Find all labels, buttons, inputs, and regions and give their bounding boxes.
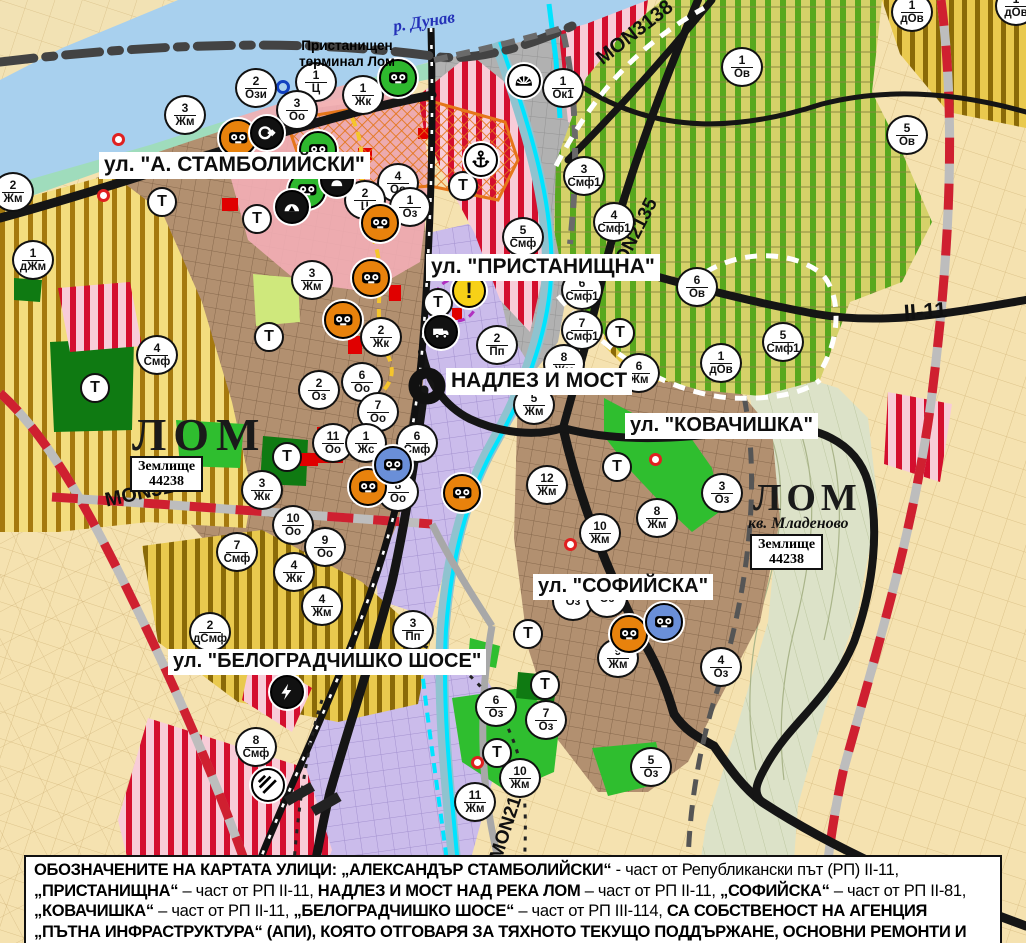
zone-marker-Смф1: 3Смф1 bbox=[563, 156, 605, 196]
zone-marker-дОв: 1дОв bbox=[891, 0, 933, 32]
road-number-label: II-11 bbox=[903, 297, 948, 326]
map-caption: ОБОЗНАЧЕНИТЕ НА КАРТАТА УЛИЦИ: „АЛЕКСАНД… bbox=[24, 855, 1002, 943]
zone-marker-Смф: 8Смф bbox=[235, 727, 277, 767]
zone-marker-Смф: 5Смф bbox=[502, 217, 544, 257]
culture-glyph bbox=[617, 622, 641, 646]
culture-icon bbox=[361, 204, 399, 242]
zone-marker-Ок1: 1Ок1 bbox=[542, 68, 584, 108]
caption-segment: „ПРИСТАНИЩНА“ bbox=[34, 882, 178, 900]
street-label: ул. "ПРИСТАНИЩНА" bbox=[426, 254, 660, 281]
zone-marker-Смф: 4Смф bbox=[136, 335, 178, 375]
caption-segment: – част от РП II-81, bbox=[830, 882, 967, 900]
caption-segment: – част от РП II-11, bbox=[178, 882, 318, 900]
culture-glyph bbox=[331, 308, 355, 332]
culture-glyph bbox=[356, 475, 380, 499]
zone-marker-Жм: 4Жм bbox=[301, 586, 343, 626]
zone-marker-Оз: 5Оз bbox=[630, 747, 672, 787]
road-number-label: MON3138 bbox=[592, 0, 678, 70]
zone-marker-Оз: 6Оз bbox=[475, 687, 517, 727]
zone-marker-Ов: 5Ов bbox=[886, 115, 928, 155]
zone-marker-Жк: 2Жк bbox=[360, 317, 402, 357]
land-register-box: Землище 44238 bbox=[750, 534, 823, 570]
sun-glyph bbox=[513, 70, 535, 92]
city-name-lom: ЛОМ bbox=[132, 408, 266, 461]
zemlishte-label: Землище bbox=[138, 459, 195, 474]
zone-marker-Ози: 2Ози bbox=[235, 68, 277, 108]
zone-marker-дСмф: 2дСмф bbox=[189, 612, 231, 652]
transformer-marker: Т bbox=[602, 452, 632, 482]
culture-glyph bbox=[652, 610, 676, 634]
culture-icon bbox=[610, 615, 648, 653]
zone-marker-Смф: 7Смф bbox=[216, 532, 258, 572]
urban-plan-map-lom: 2Ози1Ц3Оо1Жк3Жм2Жм1дЖм4Оо2Ц1Оз3Жм2Жк6Оо2… bbox=[0, 0, 1026, 943]
zemlishte-label: Землище bbox=[758, 537, 815, 552]
street-label: ул. "А. СТАМБОЛИЙСКИ" bbox=[99, 152, 370, 179]
city-name-lom-mladenovo: ЛОМ bbox=[753, 476, 862, 520]
zone-marker-Жк: 4Жк bbox=[273, 552, 315, 592]
culture-icon bbox=[443, 474, 481, 512]
sun-icon bbox=[507, 64, 541, 98]
anchor-icon bbox=[464, 143, 498, 177]
caption-segment: „КОВАЧИШКА“ bbox=[34, 902, 154, 920]
transformer-marker: Т bbox=[80, 373, 110, 403]
zone-marker-Оз: 2Оз bbox=[298, 370, 340, 410]
land-register-box: Землище 44238 bbox=[130, 456, 203, 492]
zemlishte-code: 44238 bbox=[138, 474, 195, 489]
zone-marker-Жм: 10Жм bbox=[579, 513, 621, 553]
zone-marker-Жм: 3Жм bbox=[291, 260, 333, 300]
culture-icon bbox=[374, 446, 412, 484]
transformer-marker: Т bbox=[605, 318, 635, 348]
zone-marker-Жм: 11Жм bbox=[454, 782, 496, 822]
caption-segment: „БЕЛОГРАДЧИШКО ШОСЕ“ bbox=[293, 902, 514, 920]
red-dot-marker bbox=[649, 453, 662, 466]
street-label: ул. "БЕЛОГРАДЧИШКО ШОСЕ" bbox=[168, 649, 486, 675]
zone-marker-Оз: 3Оз bbox=[701, 473, 743, 513]
lightning-glyph bbox=[276, 681, 298, 703]
transformer-marker: Т bbox=[513, 619, 543, 649]
street-label: НАДЛЕЗ И МОСТ bbox=[446, 368, 632, 395]
truck-glyph bbox=[430, 321, 452, 343]
red-dot-marker bbox=[97, 189, 110, 202]
zone-marker-Ов: 1Ов bbox=[721, 47, 763, 87]
transformer-marker: Т bbox=[482, 738, 512, 768]
zone-marker-Смф1: 5Смф1 bbox=[762, 322, 804, 362]
mountain-glyph bbox=[281, 196, 303, 218]
lightning-icon bbox=[270, 675, 304, 709]
zone-marker-Жк: 1Жк bbox=[342, 75, 384, 115]
culture-glyph bbox=[368, 211, 392, 235]
truck-icon bbox=[424, 315, 458, 349]
zemlishte-code: 44238 bbox=[758, 552, 815, 567]
street-label: ул. "СОФИЙСКА" bbox=[533, 574, 713, 600]
zone-marker-Пп: 3Пп bbox=[392, 610, 434, 650]
district-name-mladenovo: кв. Младеново bbox=[748, 515, 849, 533]
zone-marker-Жм: 12Жм bbox=[526, 465, 568, 505]
red-dot-marker bbox=[112, 133, 125, 146]
caption-segment: – част от РП II-11, bbox=[154, 902, 294, 920]
transformer-marker: Т bbox=[242, 204, 272, 234]
zone-marker-Оз: 4Оз bbox=[700, 647, 742, 687]
zone-marker-Жм: 3Жм bbox=[164, 95, 206, 135]
mountain-icon bbox=[275, 190, 309, 224]
transformer-marker: Т bbox=[530, 670, 560, 700]
zone-marker-дОв: 1дОв bbox=[700, 343, 742, 383]
zone-marker-Оз: 7Оз bbox=[525, 700, 567, 740]
transformer-marker: Т bbox=[272, 442, 302, 472]
zone-marker-Жк: 3Жк bbox=[241, 470, 283, 510]
culture-icon bbox=[352, 259, 390, 297]
zone-marker-Жм: 2Жм bbox=[0, 172, 34, 212]
crossing-icon bbox=[251, 768, 285, 802]
zone-marker-Ов: 6Ов bbox=[676, 267, 718, 307]
zone-marker-Пп: 2Пп bbox=[476, 325, 518, 365]
caption-segment: „СОФИЙСКА“ bbox=[720, 882, 830, 900]
culture-icon bbox=[645, 603, 683, 641]
crossing-glyph bbox=[257, 774, 279, 796]
culture-glyph bbox=[226, 126, 250, 150]
zone-marker-дЖм: 1дЖм bbox=[12, 240, 54, 280]
zone-marker-Смф1: 4Смф1 bbox=[593, 202, 635, 242]
caption-segment: - част от Републикански път (РП) II-11, bbox=[611, 861, 899, 879]
transformer-marker: Т bbox=[147, 187, 177, 217]
zone-marker-дОв: 1дОв bbox=[995, 0, 1026, 26]
zone-marker-Жм: 8Жм bbox=[636, 498, 678, 538]
arrow-icon bbox=[250, 116, 284, 150]
arrow-glyph bbox=[256, 122, 278, 144]
caption-segment: – част от РП II-11, bbox=[580, 882, 720, 900]
zone-marker-Оо: 3Оо bbox=[276, 90, 318, 130]
culture-glyph bbox=[450, 481, 474, 505]
caption-segment: НАДЛЕЗ И МОСТ НАД РЕКА ЛОМ bbox=[318, 882, 581, 900]
street-label: ул. "КОВАЧИШКА" bbox=[625, 413, 818, 439]
culture-icon bbox=[324, 301, 362, 339]
culture-glyph bbox=[381, 453, 405, 477]
red-dot-marker bbox=[564, 538, 577, 551]
anchor-glyph bbox=[470, 149, 492, 171]
caption-segment: ОБОЗНАЧЕНИТЕ НА КАРТАТА УЛИЦИ: „АЛЕКСАНД… bbox=[34, 861, 611, 879]
transformer-marker: Т bbox=[254, 322, 284, 352]
caption-segment: – част от РП III-114, bbox=[514, 902, 667, 920]
transformer-marker: Т bbox=[423, 288, 453, 318]
culture-glyph bbox=[359, 266, 383, 290]
port-terminal-label: Пристанищен терминал Лом bbox=[282, 38, 412, 70]
